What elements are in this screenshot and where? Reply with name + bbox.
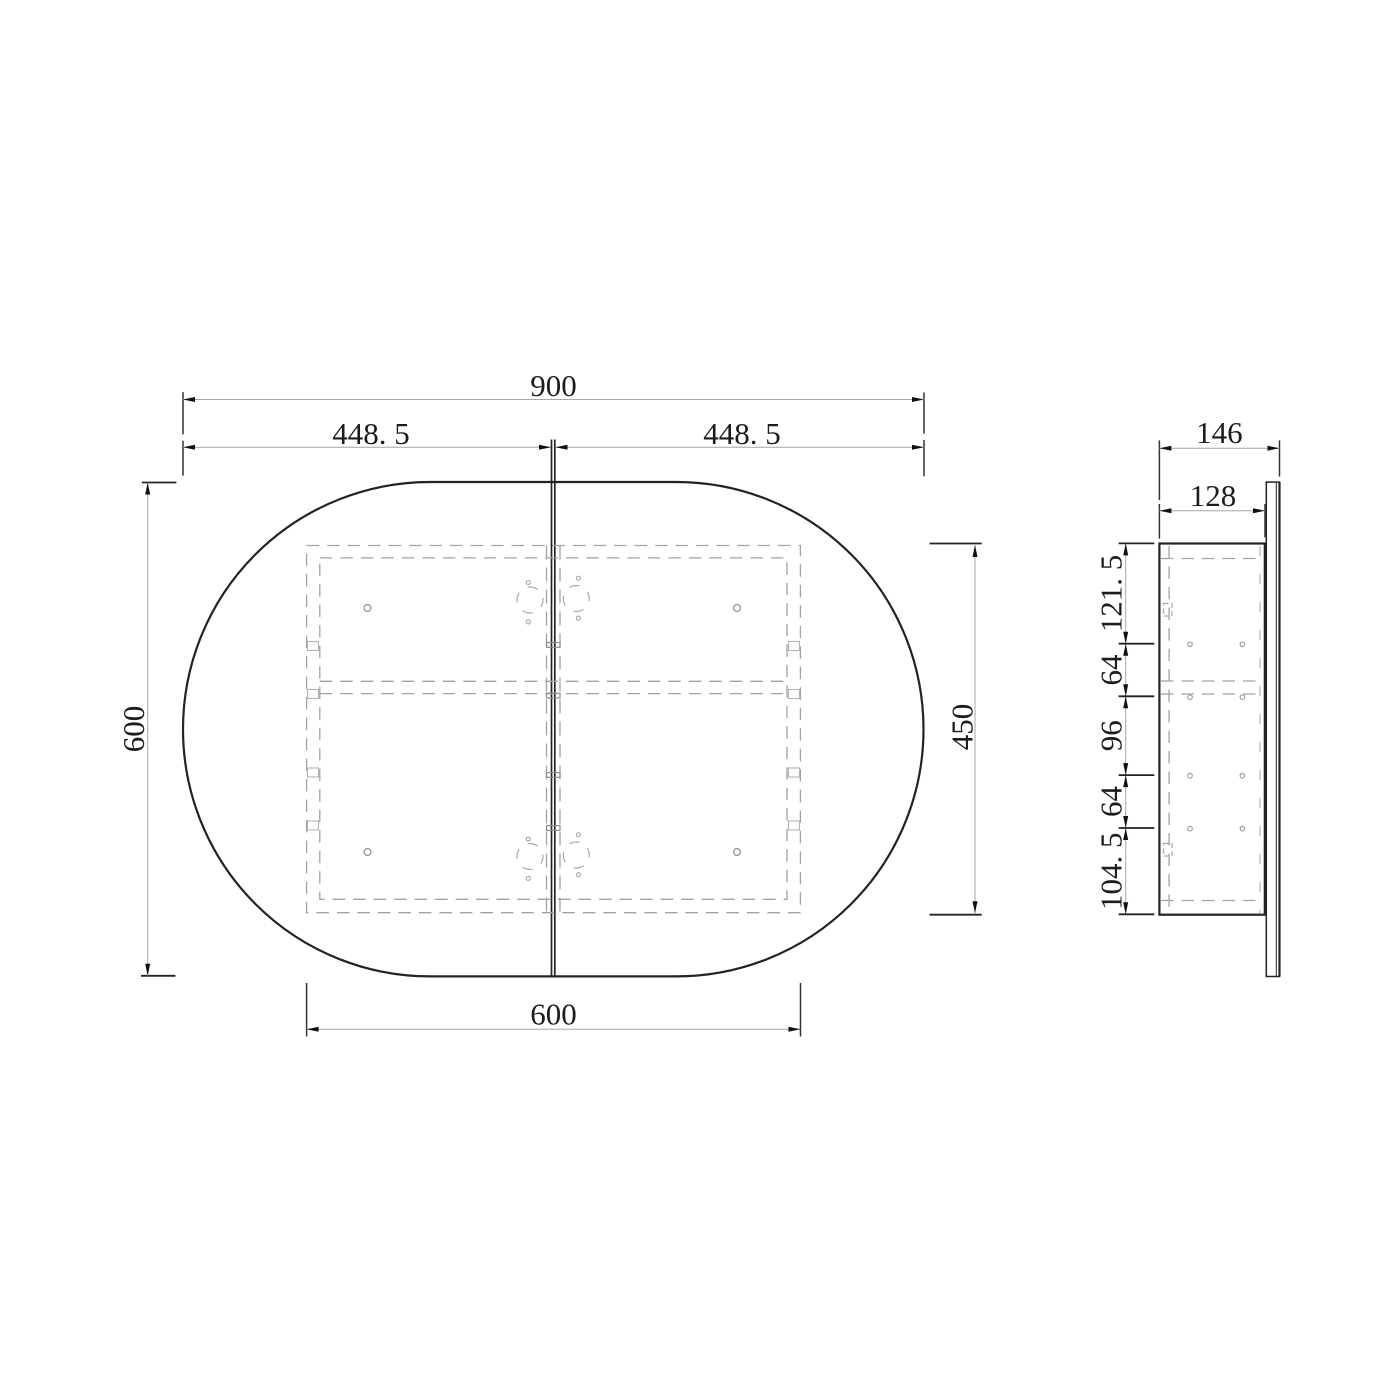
- svg-text:64: 64: [1094, 654, 1129, 686]
- svg-text:900: 900: [530, 368, 577, 403]
- svg-text:104. 5: 104. 5: [1094, 832, 1129, 910]
- svg-text:448. 5: 448. 5: [332, 416, 410, 451]
- svg-text:96: 96: [1094, 720, 1129, 751]
- svg-text:64: 64: [1094, 786, 1129, 818]
- svg-text:128: 128: [1190, 478, 1237, 513]
- svg-text:146: 146: [1196, 415, 1243, 450]
- svg-text:121. 5: 121. 5: [1094, 555, 1129, 633]
- svg-text:600: 600: [116, 706, 151, 753]
- svg-text:600: 600: [530, 997, 577, 1032]
- svg-text:450: 450: [945, 704, 980, 751]
- svg-text:448. 5: 448. 5: [703, 416, 781, 451]
